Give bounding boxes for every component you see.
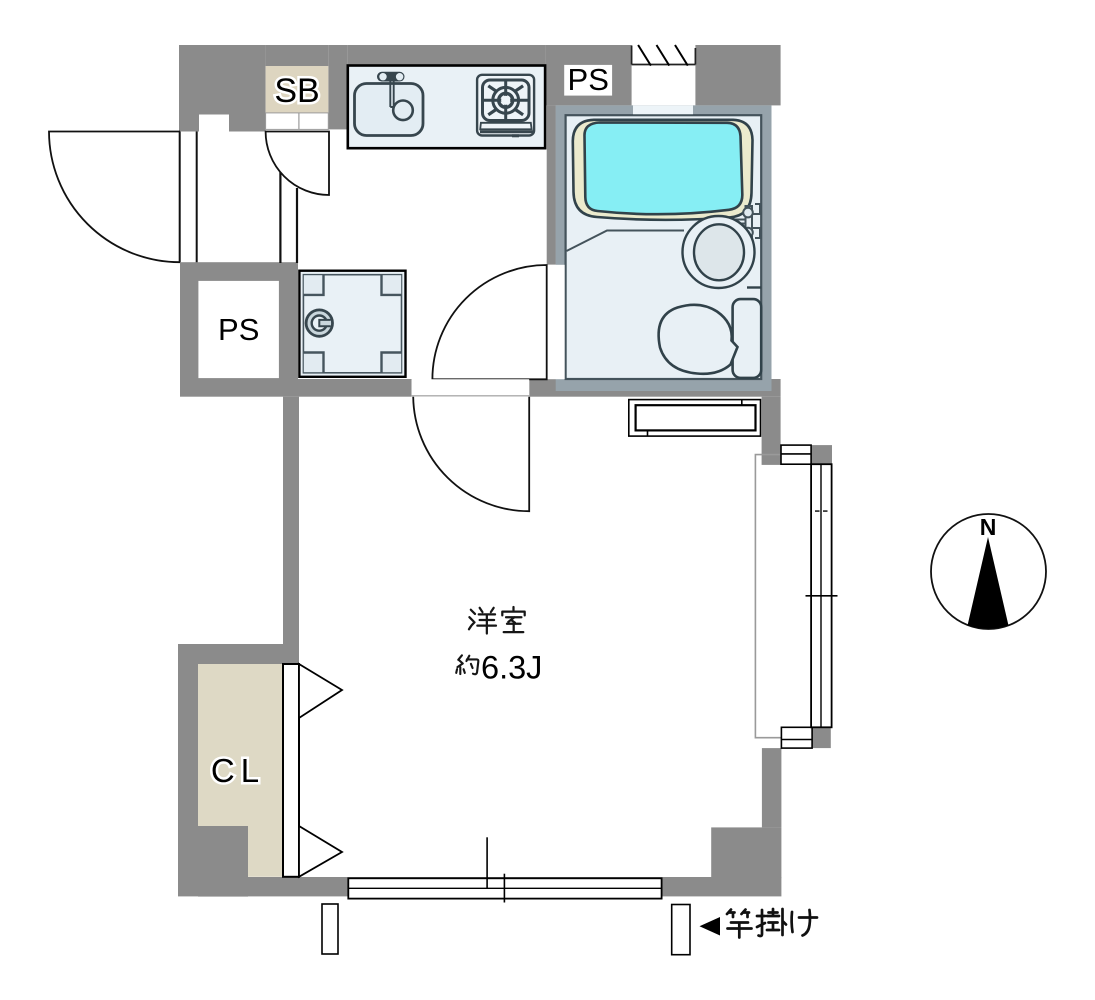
svg-text:PS: PS xyxy=(218,312,259,347)
svg-text:PS: PS xyxy=(568,62,609,97)
svg-text:CL: CL xyxy=(211,752,265,789)
svg-text:SB: SB xyxy=(274,72,319,110)
svg-text:N: N xyxy=(980,514,997,540)
svg-text:6.3J: 6.3J xyxy=(481,650,542,686)
